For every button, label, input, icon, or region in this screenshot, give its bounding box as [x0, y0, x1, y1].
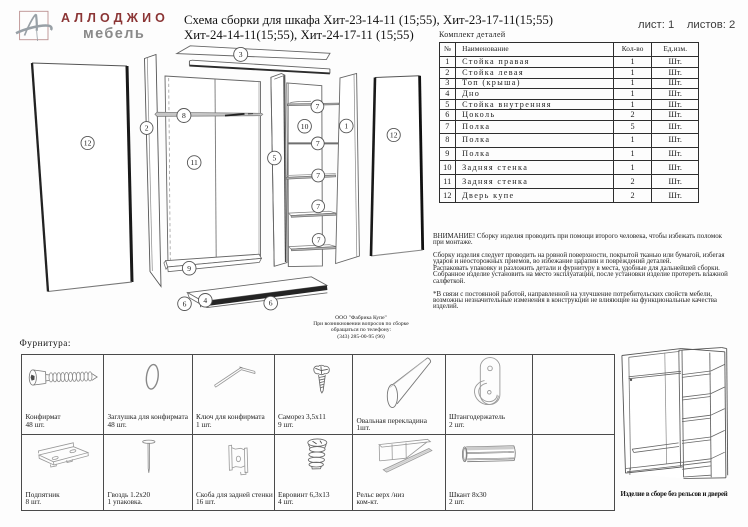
svg-text:1: 1 [344, 122, 348, 131]
svg-text:6: 6 [183, 299, 187, 308]
svg-text:12: 12 [390, 131, 398, 140]
svg-text:7: 7 [316, 139, 320, 148]
svg-text:2: 2 [145, 124, 149, 133]
svg-text:10: 10 [301, 122, 309, 131]
svg-text:3: 3 [239, 50, 243, 59]
svg-text:7: 7 [316, 102, 320, 111]
svg-text:5: 5 [273, 154, 277, 163]
svg-text:6: 6 [269, 299, 273, 308]
svg-text:8: 8 [182, 111, 186, 120]
svg-text:4: 4 [203, 296, 207, 305]
svg-text:7: 7 [316, 171, 320, 180]
svg-text:7: 7 [317, 236, 321, 245]
svg-text:7: 7 [316, 202, 320, 211]
svg-text:11: 11 [191, 158, 199, 167]
svg-text:9: 9 [187, 264, 191, 273]
svg-text:12: 12 [84, 139, 92, 148]
